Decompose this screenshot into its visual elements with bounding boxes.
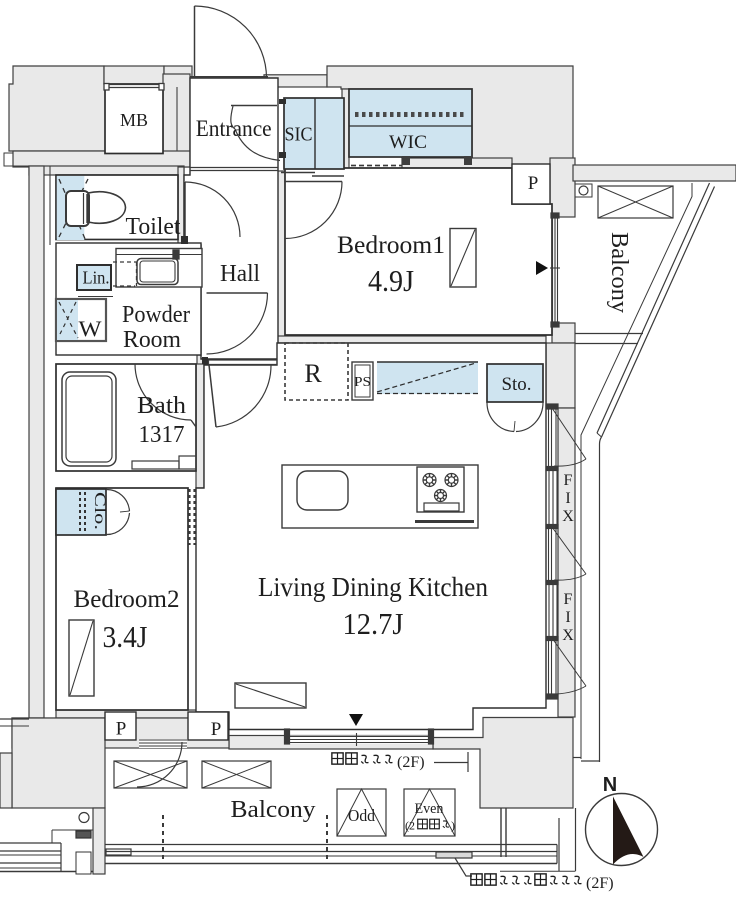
svg-text:Powder: Powder [122,302,190,328]
svg-text:Odd: Odd [348,806,376,825]
svg-text:Even: Even [415,801,444,817]
svg-text:12.7J: 12.7J [343,606,404,641]
svg-text:PS: PS [354,374,371,389]
svg-text:Hall: Hall [220,261,260,287]
svg-text:(2F): (2F) [397,754,425,771]
svg-text:R: R [304,359,322,388]
svg-text:Room: Room [123,327,181,353]
svg-text:3.4J: 3.4J [103,619,148,654]
svg-text:Balcony: Balcony [606,232,632,313]
svg-text:I: I [565,609,570,626]
svg-text:): ) [451,819,455,833]
svg-text:Entrance: Entrance [196,116,272,141]
svg-text:4.9J: 4.9J [368,263,414,298]
svg-text:P: P [528,173,539,194]
svg-text:Bedroom1: Bedroom1 [337,232,445,259]
svg-text:Balcony: Balcony [231,797,316,823]
svg-text:Sto.: Sto. [502,374,532,395]
svg-text:Bath: Bath [137,393,186,419]
svg-text:(2F): (2F) [586,875,614,892]
svg-text:WIC: WIC [389,132,427,153]
svg-text:F: F [564,591,573,608]
svg-text:X: X [562,508,574,525]
svg-text:Clo.: Clo. [91,492,108,530]
svg-text:P: P [116,719,127,740]
svg-text:W: W [79,316,102,341]
svg-text:Bedroom2: Bedroom2 [74,586,180,613]
svg-text:1317: 1317 [139,422,185,448]
svg-text:F: F [564,472,573,489]
svg-text:MB: MB [120,110,148,130]
svg-text:(2: (2 [405,819,415,833]
svg-text:SIC: SIC [285,125,313,146]
svg-text:X: X [562,627,574,644]
svg-text:Toilet: Toilet [126,214,181,240]
svg-text:N: N [603,774,617,796]
svg-text:I: I [565,490,570,507]
svg-text:P: P [211,719,222,740]
svg-text:Lin.: Lin. [83,268,110,288]
svg-text:Living Dining Kitchen: Living Dining Kitchen [258,572,488,602]
